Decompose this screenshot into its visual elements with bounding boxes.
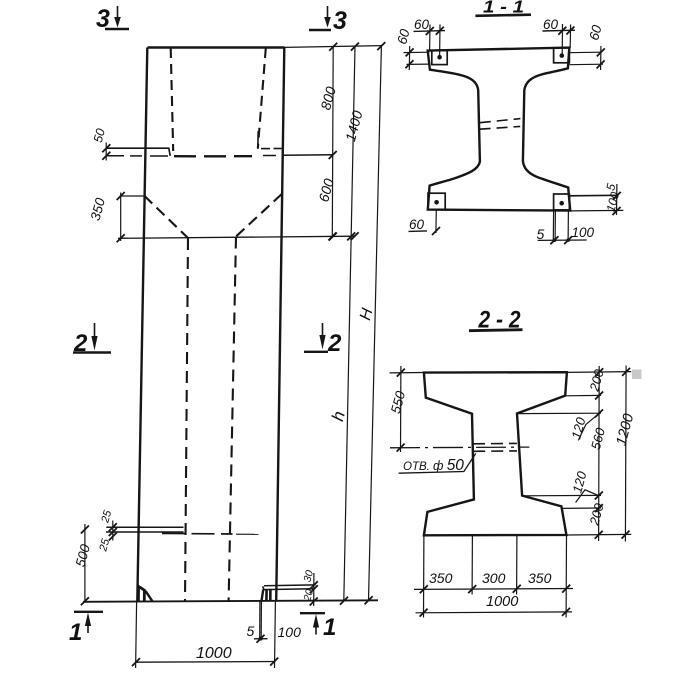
svg-text:5: 5 — [247, 623, 255, 639]
svg-text:3: 3 — [333, 7, 347, 35]
svg-text:350: 350 — [429, 570, 453, 586]
svg-text:100: 100 — [572, 225, 595, 240]
svg-text:5: 5 — [537, 226, 545, 242]
svg-text:2: 2 — [327, 330, 342, 357]
svg-text:100: 100 — [278, 624, 302, 640]
svg-text:1: 1 — [323, 614, 336, 641]
svg-text:60: 60 — [543, 17, 559, 32]
svg-text:350: 350 — [528, 570, 552, 586]
svg-text:60: 60 — [409, 217, 425, 232]
svg-text:1: 1 — [69, 619, 82, 646]
svg-text:300: 300 — [482, 570, 506, 586]
svg-text:1000: 1000 — [196, 645, 232, 662]
svg-text:1000: 1000 — [486, 594, 518, 610]
svg-text:60: 60 — [414, 17, 430, 32]
